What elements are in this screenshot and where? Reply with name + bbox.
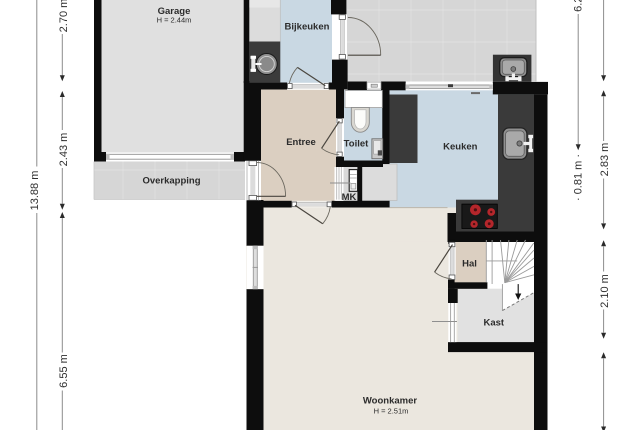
- svg-text:Toilet: Toilet: [344, 138, 369, 149]
- svg-text:2.70 m: 2.70 m: [58, 0, 70, 32]
- svg-text:2.43 m: 2.43 m: [58, 133, 70, 167]
- svg-text:6.55 m: 6.55 m: [58, 354, 70, 388]
- svg-text:H = 2.44m: H = 2.44m: [157, 16, 192, 25]
- svg-text:Keuken: Keuken: [443, 141, 478, 152]
- svg-text:Woonkamer: Woonkamer: [363, 395, 418, 406]
- svg-text:Overkapping: Overkapping: [142, 175, 200, 186]
- svg-text:· 0.81 m ·: · 0.81 m ·: [573, 154, 585, 201]
- svg-text:13.88 m: 13.88 m: [29, 171, 41, 211]
- svg-text:2.10 m: 2.10 m: [599, 274, 611, 308]
- svg-text:Entree: Entree: [286, 137, 316, 148]
- svg-text:Kast: Kast: [484, 318, 505, 329]
- svg-text:6.21 m: 6.21 m: [573, 0, 585, 12]
- svg-text:MK: MK: [342, 192, 357, 203]
- svg-text:Hal: Hal: [462, 259, 477, 270]
- svg-text:H = 2.51m: H = 2.51m: [374, 406, 409, 415]
- svg-text:Bijkeuken: Bijkeuken: [285, 22, 330, 33]
- svg-text:2.83 m: 2.83 m: [599, 143, 611, 177]
